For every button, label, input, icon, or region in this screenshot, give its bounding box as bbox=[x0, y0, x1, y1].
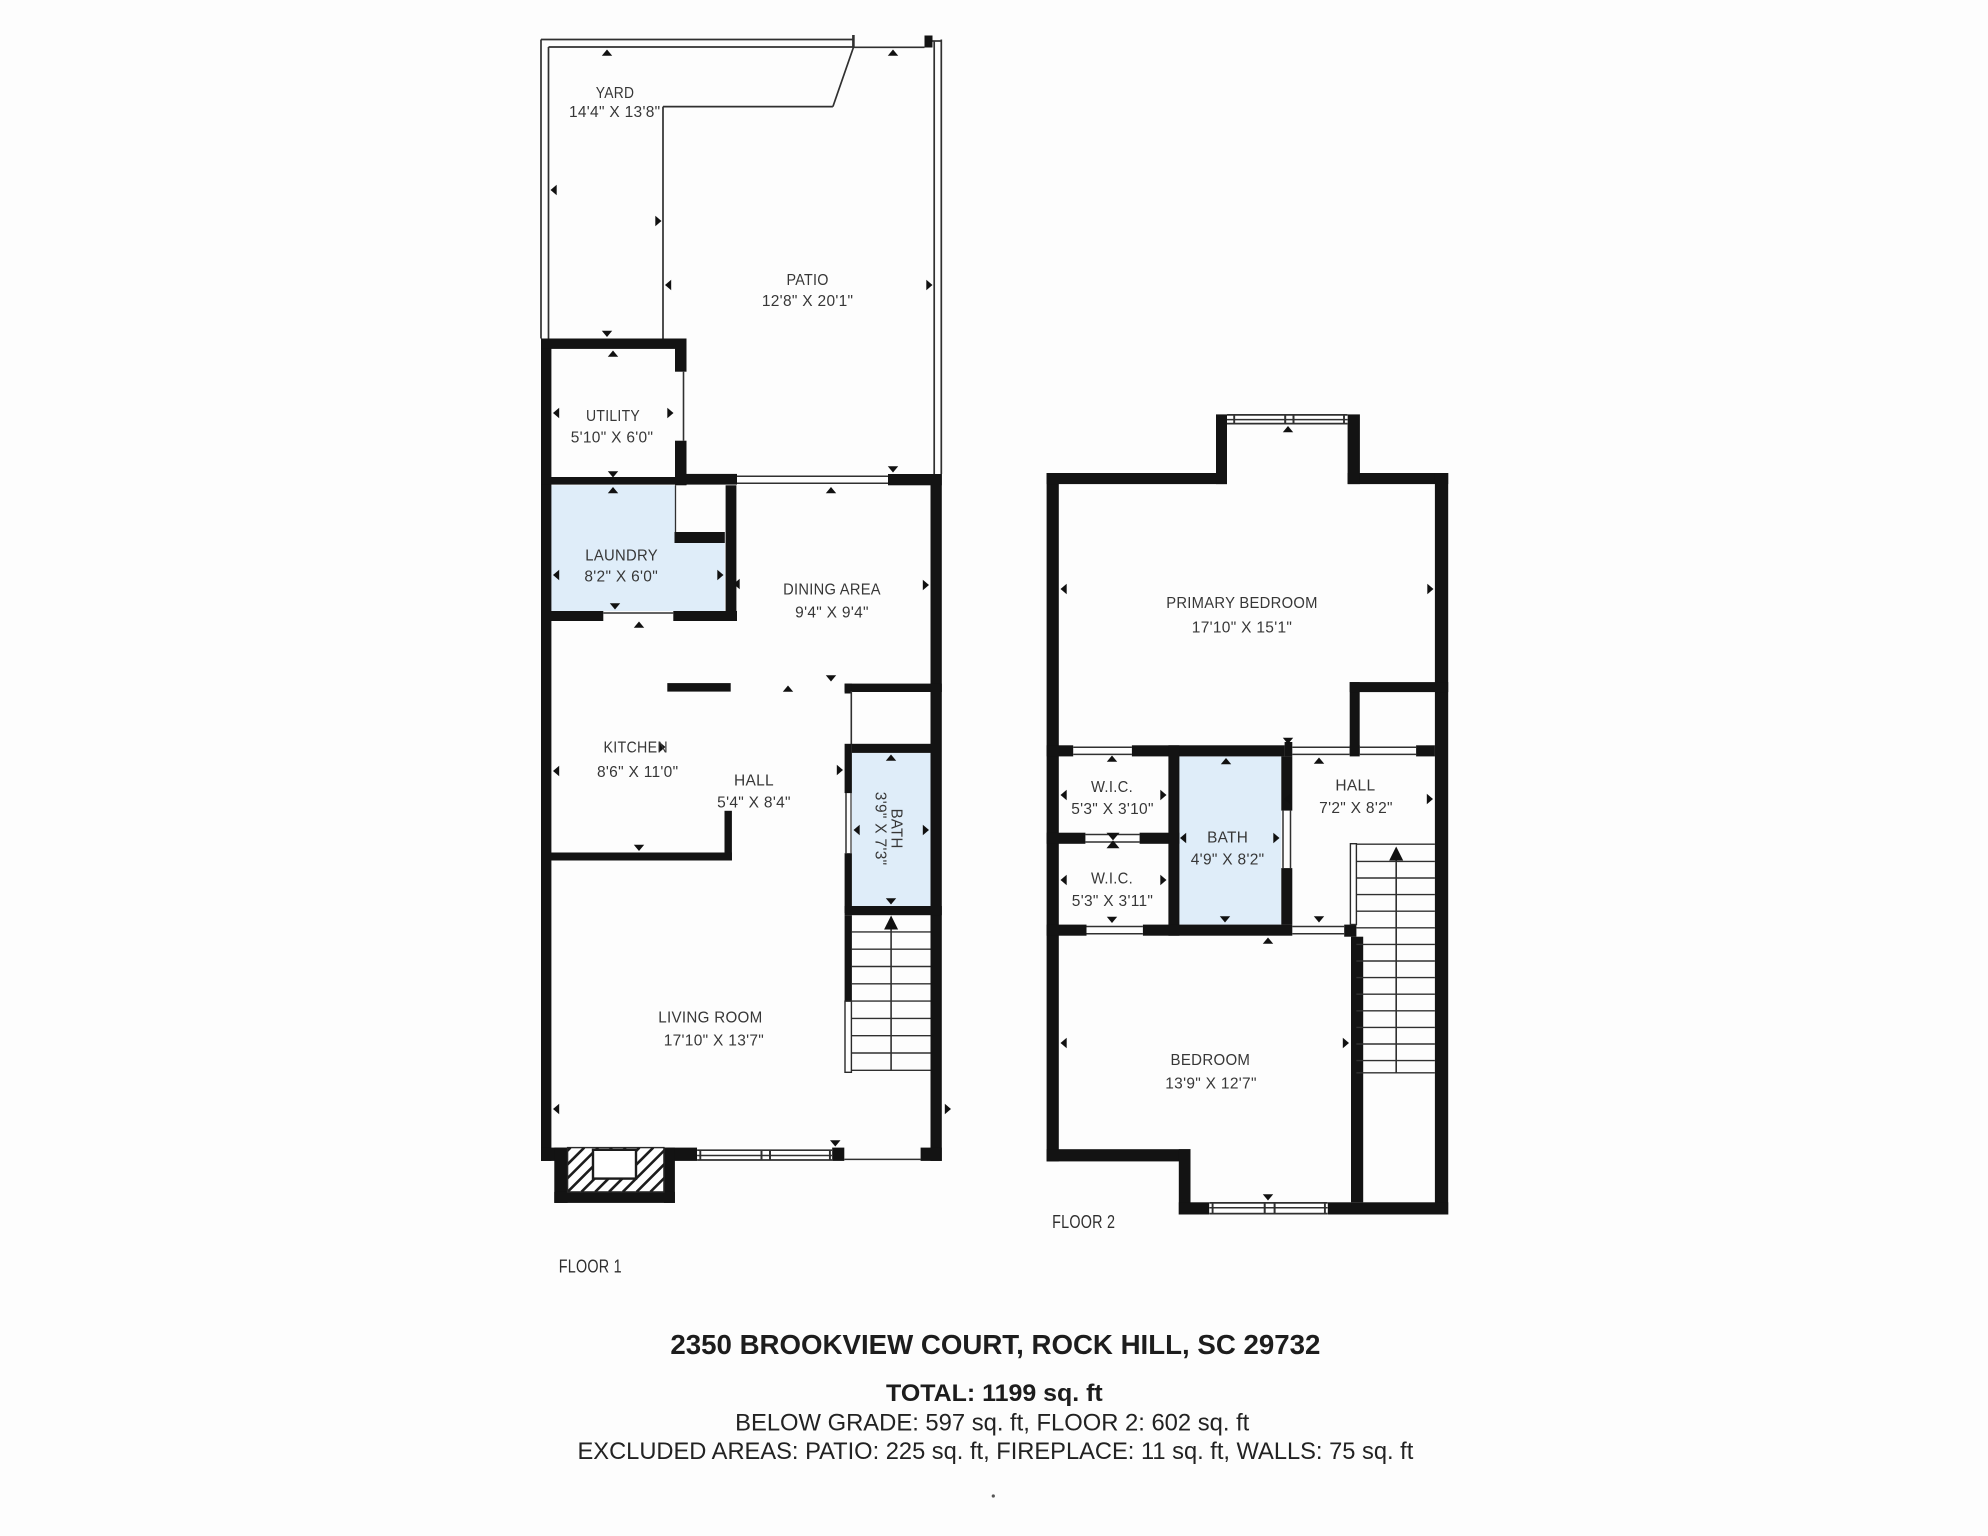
svg-text:FLOOR 1: FLOOR 1 bbox=[559, 1257, 622, 1277]
svg-text:5'3" X 3'10": 5'3" X 3'10" bbox=[1071, 801, 1154, 818]
svg-text:BELOW GRADE: 597 sq. ft, FLOOR: BELOW GRADE: 597 sq. ft, FLOOR 2: 602 sq… bbox=[735, 1409, 1250, 1436]
svg-text:12'8" X 20'1": 12'8" X 20'1" bbox=[762, 293, 854, 310]
svg-text:TOTAL: 1199 sq. ft: TOTAL: 1199 sq. ft bbox=[886, 1380, 1103, 1407]
svg-text:FLOOR 2: FLOOR 2 bbox=[1052, 1212, 1115, 1232]
svg-text:UTILITY: UTILITY bbox=[586, 408, 640, 425]
svg-text:17'10" X 15'1": 17'10" X 15'1" bbox=[1192, 620, 1292, 637]
svg-text:17'10" X 13'7": 17'10" X 13'7" bbox=[664, 1033, 764, 1050]
svg-text:HALL: HALL bbox=[734, 772, 774, 789]
svg-text:3'9" X 7'3": 3'9" X 7'3" bbox=[872, 792, 889, 866]
svg-text:13'9" X 12'7": 13'9" X 12'7" bbox=[1165, 1075, 1257, 1092]
svg-text:PATIO: PATIO bbox=[786, 272, 828, 289]
svg-text:DINING AREA: DINING AREA bbox=[783, 582, 881, 599]
svg-text:YARD: YARD bbox=[596, 85, 634, 102]
svg-text:LIVING ROOM: LIVING ROOM bbox=[658, 1009, 762, 1026]
svg-text:W.I.C.: W.I.C. bbox=[1091, 779, 1133, 796]
svg-text:LAUNDRY: LAUNDRY bbox=[585, 547, 658, 564]
svg-text:BATH: BATH bbox=[888, 809, 905, 849]
svg-text:EXCLUDED AREAS: PATIO: 225 sq.: EXCLUDED AREAS: PATIO: 225 sq. ft, FIREP… bbox=[578, 1438, 1414, 1465]
svg-text:BEDROOM: BEDROOM bbox=[1171, 1052, 1251, 1069]
svg-text:BATH: BATH bbox=[1207, 830, 1248, 847]
svg-text:5'4" X 8'4": 5'4" X 8'4" bbox=[717, 794, 791, 811]
svg-text:14'4" X 13'8": 14'4" X 13'8" bbox=[569, 104, 661, 121]
svg-text:4'9" X 8'2": 4'9" X 8'2" bbox=[1191, 852, 1265, 869]
svg-text:5'10" X 6'0": 5'10" X 6'0" bbox=[571, 430, 654, 447]
svg-text:8'6" X 11'0": 8'6" X 11'0" bbox=[597, 764, 678, 781]
svg-text:8'2" X 6'0": 8'2" X 6'0" bbox=[584, 569, 658, 586]
svg-text:KITCHEN: KITCHEN bbox=[604, 740, 668, 757]
svg-text:9'4" X 9'4": 9'4" X 9'4" bbox=[795, 604, 869, 621]
svg-text:2350 BROOKVIEW COURT, ROCK HIL: 2350 BROOKVIEW COURT, ROCK HILL, SC 2973… bbox=[670, 1329, 1320, 1360]
svg-text:HALL: HALL bbox=[1335, 778, 1375, 795]
svg-text:5'3" X 3'11": 5'3" X 3'11" bbox=[1072, 893, 1153, 910]
svg-text:W.I.C.: W.I.C. bbox=[1091, 871, 1133, 888]
svg-text:PRIMARY BEDROOM: PRIMARY BEDROOM bbox=[1166, 595, 1318, 612]
svg-text:7'2" X 8'2": 7'2" X 8'2" bbox=[1319, 800, 1393, 817]
